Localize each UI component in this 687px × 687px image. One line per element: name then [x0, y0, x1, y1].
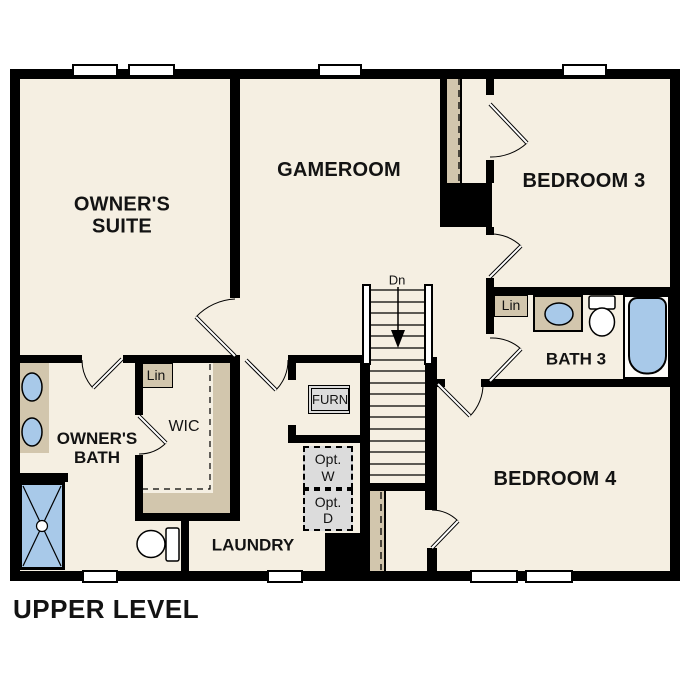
wall-exterior-right — [670, 69, 680, 581]
window — [72, 64, 118, 77]
room-label-bedroom3: BEDROOM 3 — [523, 170, 646, 192]
shower — [19, 482, 65, 570]
wall-wic-left-a — [135, 363, 143, 415]
room-label-laundry: LAUNDRY — [212, 535, 294, 554]
wic-shelf-bottom — [143, 493, 230, 513]
room-label-wic: WIC — [168, 418, 199, 436]
lower-chase-strip — [370, 491, 386, 571]
window — [525, 570, 573, 583]
owners-bath-vanity-counter — [19, 363, 49, 453]
wall-bed3-left-a — [486, 77, 494, 95]
wall-bed4-top-jamb — [437, 379, 445, 387]
bath3-vanity-counter — [533, 295, 583, 332]
stair-railing-left — [362, 284, 371, 365]
wall-furn-left-a — [288, 363, 296, 380]
optional-dryer: Opt.D — [303, 489, 353, 531]
window — [128, 64, 175, 77]
stair-railing-right — [424, 284, 433, 365]
wall-furn-bottom — [288, 435, 368, 443]
optional-washer: Opt.W — [303, 446, 353, 489]
wall-wic-right — [230, 363, 240, 515]
wall-bed4-jamb — [427, 548, 437, 571]
window — [267, 570, 303, 583]
chase-block-bottom — [325, 533, 360, 571]
optional-washer-label: Opt.W — [315, 451, 341, 483]
wall-bath3-bottom — [481, 379, 670, 387]
window — [318, 64, 362, 77]
label-stairs-dn: Dn — [389, 274, 406, 289]
window — [470, 570, 518, 583]
wall-bed3-left-c — [486, 227, 494, 235]
wall-shower-top — [10, 473, 68, 482]
room-label-bath3: BATH 3 — [546, 349, 606, 368]
wic-shelf-right — [213, 363, 230, 493]
wall-toilet-laundry — [181, 521, 189, 571]
window — [82, 570, 118, 583]
optional-dryer-label: Opt.D — [315, 494, 341, 526]
label-linen-wic: Lin — [147, 368, 166, 384]
wall-hall-top — [288, 355, 368, 363]
floor-plan: FURN Opt.W Opt.D — [0, 0, 687, 687]
furnace-label: FURN — [311, 388, 349, 411]
wall-bed3-left-b — [486, 160, 494, 183]
label-linen-bath3: Lin — [502, 298, 521, 314]
wall-stairs-bottom — [363, 483, 437, 491]
plan-title: UPPER LEVEL — [13, 594, 199, 625]
wall-below-stairs-left — [360, 491, 370, 571]
room-label-gameroom: GAMEROOM — [277, 159, 401, 181]
tub-alcove — [623, 295, 670, 379]
wall-wic-bottom — [135, 513, 240, 521]
room-label-owners-suite: OWNER'SSUITE — [74, 194, 170, 239]
chase-block-mid — [440, 183, 492, 227]
wall-chase-left — [440, 69, 447, 183]
room-label-bedroom4: BEDROOM 4 — [494, 468, 617, 490]
upper-chase-strip — [447, 77, 462, 183]
wall-suite-bottom-a — [10, 355, 82, 363]
wall-bath3-top — [486, 287, 670, 295]
window — [562, 64, 607, 77]
furnace-unit: FURN — [308, 385, 350, 414]
room-label-owners-bath: OWNER'SBATH — [57, 429, 138, 467]
wall-bath3-left — [486, 295, 494, 334]
wall-suite-gameroom — [230, 69, 240, 298]
wall-suite-bottom-b — [123, 355, 240, 363]
wall-stairs-left — [360, 357, 370, 491]
